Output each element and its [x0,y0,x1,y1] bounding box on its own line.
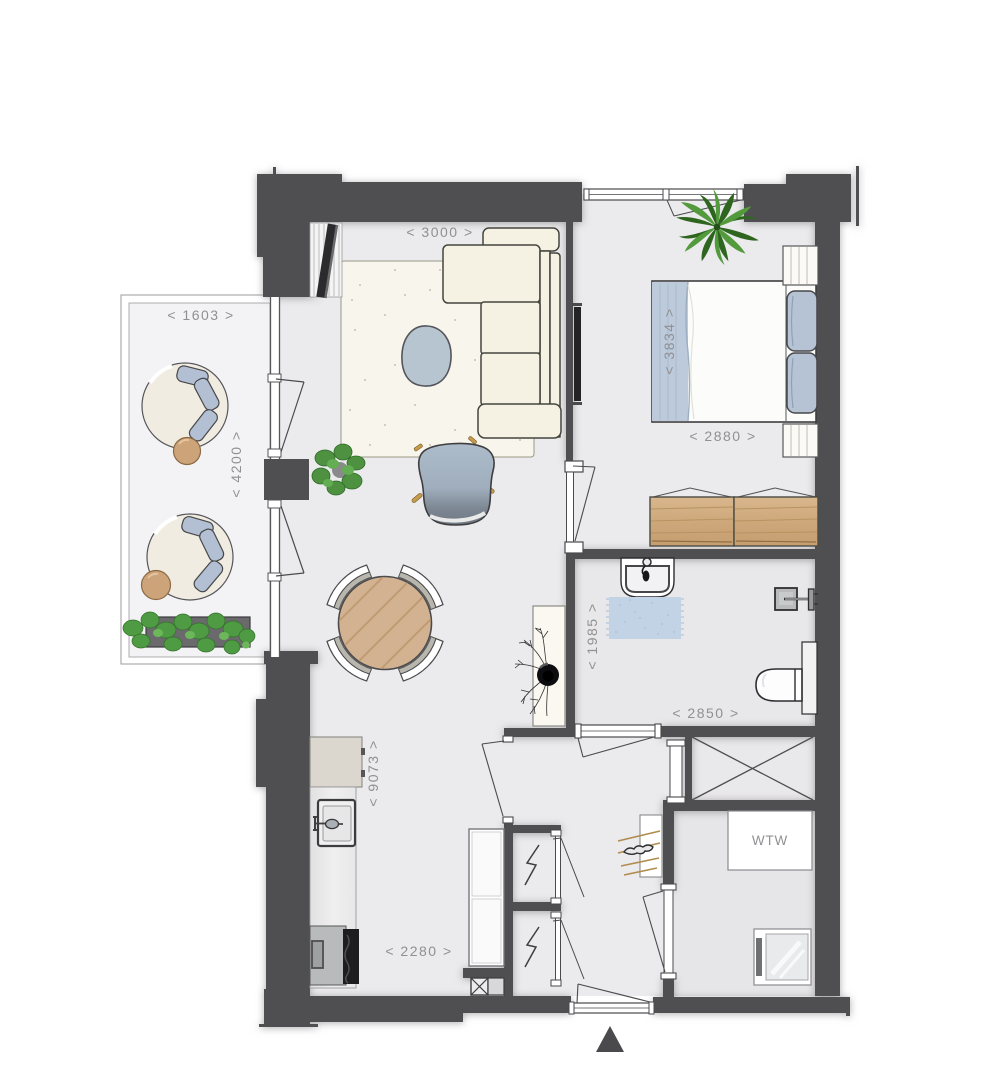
svg-text:< 9073 >: < 9073 > [365,739,381,806]
svg-text:< 2280 >: < 2280 > [385,943,452,959]
svg-text:< 2850 >: < 2850 > [672,705,739,721]
svg-text:WTW: WTW [752,833,788,848]
svg-text:< 1985 >: < 1985 > [584,602,600,669]
svg-text:< 1603 >: < 1603 > [167,307,234,323]
svg-text:< 2880 >: < 2880 > [689,428,756,444]
svg-text:< 4200 >: < 4200 > [228,430,244,497]
svg-text:< 3000 >: < 3000 > [406,224,473,240]
svg-text:< 3834 >: < 3834 > [661,307,677,374]
